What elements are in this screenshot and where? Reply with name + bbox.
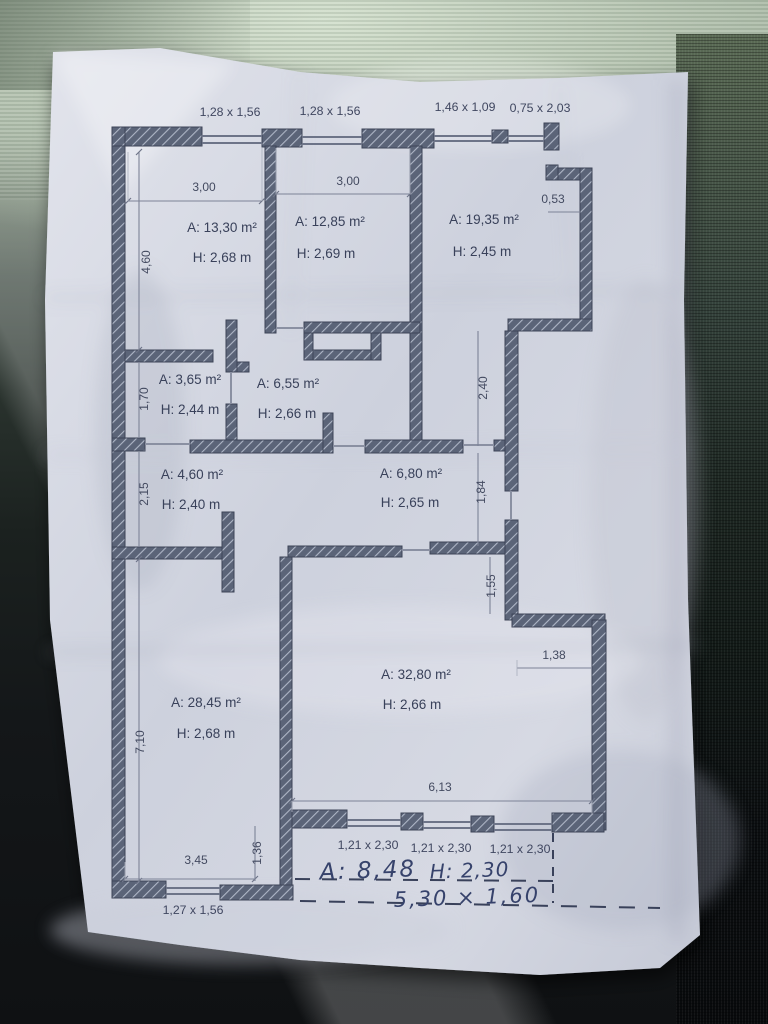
dim-right-lower: 1,55 — [484, 574, 498, 598]
room-height-label: H: 2,45 m — [453, 244, 512, 259]
room-height-label: H: 2,44 m — [161, 402, 220, 417]
dim-step-width: 1,38 — [542, 648, 566, 662]
dim-bottom-width: 3,45 — [184, 853, 208, 867]
handwritten-balcony-size: 5,30 × 1,60 — [393, 883, 540, 912]
dim-right-upper: 2,40 — [476, 376, 490, 400]
room-area-label: A: 6,80 m² — [380, 466, 443, 481]
handwritten-balcony-area: A: 8,48 — [317, 856, 416, 885]
room-area-label: A: 19,35 m² — [449, 212, 519, 227]
paper-sheet: 3,00 3,00 0,53 4,60 1,70 2,15 7,10 2,40 … — [45, 48, 740, 975]
room-height-label: H: 2,66 m — [258, 406, 317, 421]
room-area-label: A: 28,45 m² — [171, 695, 241, 710]
room-area-label: A: 4,60 m² — [161, 467, 224, 482]
room-height-label: H: 2,69 m — [297, 246, 356, 261]
window-size-label: 1,28 x 1,56 — [200, 105, 261, 119]
handwritten-balcony-height: H: 2,30 — [429, 857, 509, 884]
dim-left-mid-lower: 2,15 — [137, 482, 151, 506]
dim-bottom-offset: 1,36 — [250, 841, 264, 865]
dim-left-upper: 4,60 — [139, 250, 153, 274]
room-area-label: A: 32,80 m² — [381, 667, 451, 682]
window-size-label: 1,46 x 1,09 — [435, 100, 496, 114]
room-area-label: A: 13,30 m² — [187, 220, 257, 235]
window-size-label: 1,21 x 2,30 — [338, 838, 399, 852]
photo-scene: 3,00 3,00 0,53 4,60 1,70 2,15 7,10 2,40 … — [0, 0, 768, 1024]
dim-left-lower: 7,10 — [133, 730, 147, 754]
dim-living-width: 6,13 — [428, 780, 452, 794]
window-size-label: 1,21 x 2,30 — [490, 842, 551, 856]
room-area-label: A: 6,55 m² — [257, 376, 320, 391]
window-size-label: 1,21 x 2,30 — [411, 841, 472, 855]
dim-room1-width: 3,00 — [192, 180, 216, 194]
window-size-label: 1,27 x 1,56 — [163, 903, 224, 917]
window-size-label: 1,28 x 1,56 — [300, 104, 361, 118]
dim-right-mid: 1,84 — [474, 480, 488, 504]
room-area-label: A: 12,85 m² — [295, 214, 365, 229]
room-height-label: H: 2,68 m — [177, 726, 236, 741]
room-height-label: H: 2,68 m — [193, 250, 252, 265]
room-height-label: H: 2,65 m — [381, 495, 440, 510]
dim-left-mid-upper: 1,70 — [137, 387, 151, 411]
room-height-label: H: 2,66 m — [383, 697, 442, 712]
dim-niche-width: 0,53 — [541, 192, 565, 206]
floor-plan-photo: 3,00 3,00 0,53 4,60 1,70 2,15 7,10 2,40 … — [0, 0, 768, 1024]
room-area-label: A: 3,65 m² — [159, 372, 222, 387]
room-height-label: H: 2,40 m — [162, 497, 221, 512]
window-size-label: 0,75 x 2,03 — [510, 101, 571, 115]
dim-room2-width: 3,00 — [336, 174, 360, 188]
